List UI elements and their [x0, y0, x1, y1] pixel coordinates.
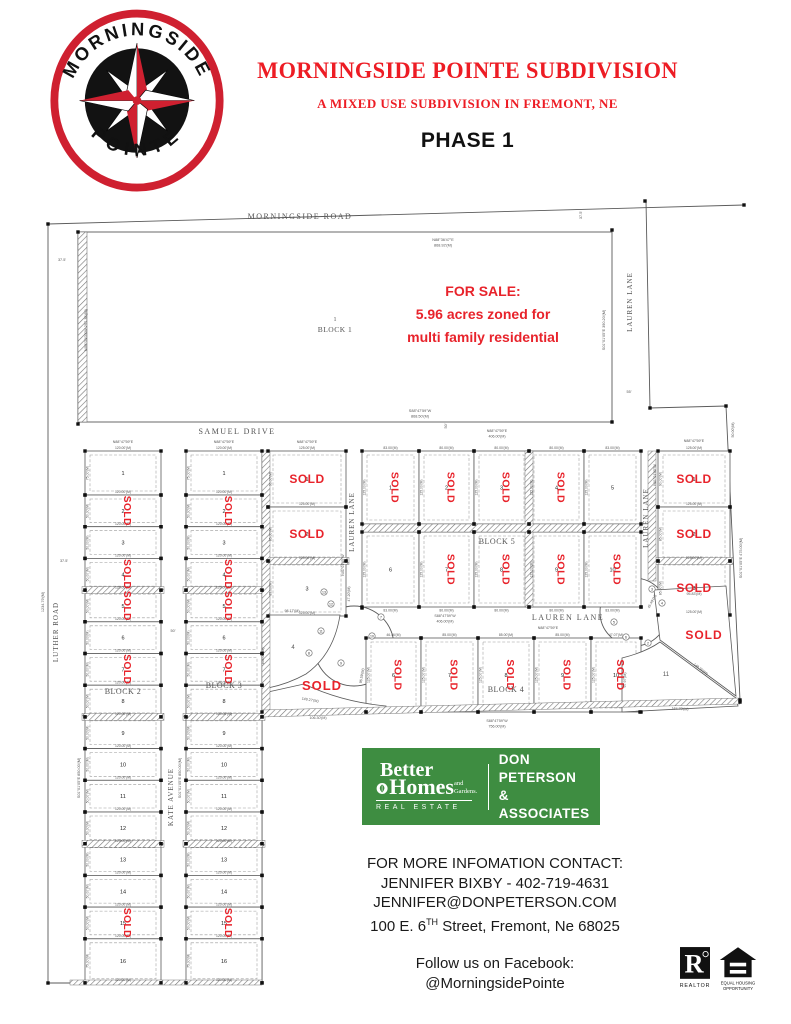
survey-point: [344, 505, 347, 508]
survey-point: [260, 874, 263, 877]
map-dimension-label: 50.00'(M): [85, 567, 89, 581]
survey-point: [184, 937, 187, 940]
sold-label: SOLD: [121, 496, 132, 526]
street-label-lauren-lane-west: LAUREN LANE: [348, 492, 356, 552]
survey-point: [260, 620, 263, 623]
bhg-homes-text: Homes: [389, 778, 454, 796]
map-dimension-label: 120.00'(M): [216, 839, 232, 843]
street-label-lauren-lane-mid: LAUREN LANE: [532, 613, 604, 622]
curve-marker-number: 7: [380, 615, 382, 619]
curve-marker-number: 12: [329, 602, 333, 606]
survey-point: [184, 874, 187, 877]
address-prefix: 100 E. 6: [370, 918, 426, 935]
sold-label: SOLD: [392, 659, 404, 690]
map-dimension-label: 75.00'(M): [186, 954, 190, 968]
map-dimension-label: 50': [444, 423, 448, 428]
sold-label: SOLD: [500, 554, 512, 585]
map-dimension-label: 106.30'(M): [309, 716, 326, 720]
sold-label: SOLD: [121, 908, 132, 938]
map-dimension-label: 165.00'(M): [261, 647, 265, 664]
map-dimension-label: 120.00'(M): [115, 839, 131, 843]
street-label-lauren-lane-east: LAUREN LANE: [642, 488, 650, 548]
curve-marker-number: 10: [370, 634, 374, 638]
survey-point: [639, 605, 642, 608]
lot-number: 9: [222, 731, 225, 737]
lot-number: 9: [121, 731, 124, 737]
easement-hatch: [70, 980, 262, 985]
map-dimension-label: N88°36'47"E: [432, 238, 454, 242]
map-dimension-label: 95.83'(M): [686, 592, 701, 596]
survey-point: [83, 905, 86, 908]
survey-point: [260, 710, 263, 713]
survey-point: [184, 905, 187, 908]
map-dimension-label: 164.70'(M): [671, 707, 688, 712]
map-dimension-label: 125.00'(M): [529, 479, 533, 495]
survey-point: [184, 684, 187, 687]
map-dimension-label: 125.00'(M): [686, 556, 702, 560]
survey-point: [184, 981, 187, 984]
survey-point: [724, 404, 727, 407]
survey-point: [76, 230, 79, 233]
map-dimension-label: 47.07'(M): [609, 633, 623, 637]
survey-point: [159, 981, 162, 984]
map-dimension-label: N88°47'59"E: [684, 439, 705, 443]
map-dimension-label: 85.00'(M): [658, 527, 662, 541]
map-dimension-label: 120.00'(M): [115, 776, 131, 780]
map-dimension-label: S01°01'05"E 475.00'(M): [739, 537, 743, 578]
map-dimension-label: 120.00'(M): [115, 554, 131, 558]
survey-point: [527, 530, 530, 533]
lot-number: 1: [222, 471, 225, 477]
street-label-samuel-drive: SAMUEL DRIVE: [198, 427, 275, 436]
map-dimension-label: 120.00'(M): [115, 649, 131, 653]
survey-point: [184, 779, 187, 782]
map-dimension-label: 125.00'(M): [591, 667, 595, 683]
survey-point: [260, 779, 263, 782]
survey-point: [76, 422, 79, 425]
map-dimension-label: 125.00'(M): [474, 479, 478, 495]
survey-point: [360, 522, 363, 525]
map-dimension-label: 120.00'(M): [216, 744, 232, 748]
map-dimension-label: 120.00'(M): [115, 902, 131, 906]
survey-point: [159, 684, 162, 687]
lot-number: 8: [222, 699, 225, 705]
map-dimension-label: 125.00'(M): [686, 610, 702, 614]
survey-point: [417, 449, 420, 452]
sold-label: SOLD: [222, 591, 233, 621]
street-label-morningside-road: MORNINGSIDE ROAD: [248, 212, 353, 221]
survey-point: [159, 525, 162, 528]
survey-point: [360, 530, 363, 533]
don-peterson-line1: DON PETERSON: [499, 751, 600, 787]
survey-point: [184, 525, 187, 528]
survey-point: [260, 905, 263, 908]
map-dimension-label: 868.50'(M): [411, 415, 430, 419]
better-homes-gardens-logo: Better Homes and Gardens. REAL ESTATE: [362, 756, 482, 817]
survey-point: [639, 449, 642, 452]
map-dimension-label: 120.00'(M): [216, 978, 232, 982]
survey-point: [260, 652, 263, 655]
contact-heading: FOR MORE INFOMATION CONTACT:: [305, 854, 685, 874]
map-dimension-label: 85.00'(M): [555, 633, 569, 637]
map-dimension-label: 120.00'(M): [216, 712, 232, 716]
map-dimension-label: 125.00'(M): [421, 667, 425, 683]
survey-point: [184, 620, 187, 623]
survey-point: [159, 779, 162, 782]
lot-number: 12: [221, 826, 227, 832]
survey-point: [648, 406, 651, 409]
survey-point: [83, 449, 86, 452]
map-dimension-label: 120.00'(M): [115, 712, 131, 716]
for-sale-line-3: multi family residential: [407, 329, 559, 345]
map-dimension-label: 85.00'(M): [658, 581, 662, 595]
equal-housing-caption-2: OPPORTUNITY: [723, 986, 753, 991]
survey-point: [639, 522, 642, 525]
survey-point: [184, 493, 187, 496]
survey-point: [656, 449, 659, 452]
bhg-and-gardens-text: and Gardens.: [454, 780, 482, 796]
map-dimension-label: 125.00'(M): [478, 667, 482, 683]
lot-number: 10: [120, 762, 126, 768]
survey-point: [184, 747, 187, 750]
map-dimension-label: 75.00'(M): [85, 954, 89, 968]
sold-label: SOLD: [561, 659, 573, 690]
map-dimension-label: 125.00'(M): [299, 446, 315, 450]
street-label-kate-avenue: KATE AVENUE: [167, 768, 175, 826]
survey-point: [184, 810, 187, 813]
contact-address: 100 E. 6TH Street, Fremont, Ne 68025: [305, 913, 685, 937]
survey-point: [472, 522, 475, 525]
lot-number: 10: [221, 762, 227, 768]
survey-point: [582, 522, 585, 525]
survey-point: [46, 222, 49, 225]
survey-point: [476, 710, 479, 713]
map-dimension-label: N88°47'59"E: [538, 626, 559, 630]
sold-label: SOLD: [445, 472, 457, 503]
lot-number: 3: [222, 541, 225, 547]
map-dimension-label: 85.00'(M): [268, 581, 272, 595]
survey-point: [260, 715, 263, 718]
survey-point: [159, 747, 162, 750]
survey-point: [83, 874, 86, 877]
survey-point: [83, 981, 86, 984]
map-dimension-label: 120.00'(M): [216, 902, 232, 906]
map-dimension-label: N88°47'59"E: [214, 440, 235, 444]
for-sale-line-1: FOR SALE:: [445, 283, 520, 299]
survey-point: [83, 652, 86, 655]
sold-label: SOLD: [676, 527, 711, 541]
survey-point: [266, 505, 269, 508]
map-dimension-label: 120.00'(M): [216, 807, 232, 811]
bhg-divider: [376, 800, 472, 801]
map-dimension-label: 50.00'(M): [186, 757, 190, 771]
survey-point: [184, 588, 187, 591]
survey-point: [742, 203, 745, 206]
survey-point: [159, 557, 162, 560]
map-dimension-label: 90.00'(M): [658, 472, 662, 486]
curve-marker-number: 4: [661, 601, 663, 605]
survey-point: [83, 715, 86, 718]
map-dimension-label: 83.00'(M): [383, 446, 397, 450]
sold-label: SOLD: [500, 472, 512, 503]
survey-point: [527, 449, 530, 452]
sold-label: SOLD: [685, 628, 722, 642]
flyer-page: MORNINGSIDE POINTE MORNINGSIDE POINTE SU…: [0, 0, 791, 1024]
survey-point: [527, 605, 530, 608]
facebook-block: Follow us on Facebook: @MorningsidePoint…: [305, 954, 685, 993]
map-dimension-label: S01°01'05"E 850.00'(M): [178, 757, 182, 798]
map-dimension-label: 125.00'(M): [584, 561, 588, 577]
map-dimension-label: 120.00'(M): [216, 554, 232, 558]
sold-label: SOLD: [121, 654, 132, 684]
survey-point: [582, 530, 585, 533]
map-dimension-label: 50.00'(M): [85, 852, 89, 866]
map-dimension-label: 80.00'(M): [439, 446, 453, 450]
map-dimension-label: 75.00'(M): [85, 466, 89, 480]
map-dimension-label: 80.00'(M): [494, 446, 508, 450]
equal-housing-caption-1: EQUAL HOUSING: [721, 981, 756, 986]
map-dimension-label: 50.00'(M): [85, 821, 89, 835]
survey-point: [360, 606, 363, 609]
map-dimension-label: 37.5': [60, 559, 68, 563]
bhg-leaf-icon: [376, 781, 388, 796]
facebook-handle: @MorningsidePointe: [305, 974, 685, 994]
survey-point: [364, 710, 367, 713]
address-suffix: Street, Fremont, Ne 68025: [438, 918, 620, 935]
map-dimension-label: 55': [627, 390, 632, 394]
map-dimension-label: 50.00'(M): [186, 535, 190, 549]
lot-number: 14: [221, 889, 227, 895]
map-dimension-label: 90.00'(M): [268, 472, 272, 486]
map-dimension-label: 1234.79'(M): [41, 591, 45, 612]
map-dimension-label: 120.00'(M): [216, 446, 232, 450]
sold-label: SOLD: [121, 559, 132, 589]
survey-point: [472, 530, 475, 533]
curve-marker-number: 8: [308, 651, 310, 655]
map-dimension-label: 125.00'(M): [686, 502, 702, 506]
sold-label: SOLD: [555, 554, 567, 585]
sold-label: SOLD: [289, 472, 324, 486]
sold-label: SOLD: [222, 496, 233, 526]
survey-point: [83, 842, 86, 845]
lot-number: 12: [120, 826, 126, 832]
survey-point: [643, 199, 646, 202]
street-label-luther-road: LUTHER ROAD: [52, 602, 60, 662]
map-dimension-label: 125.00'(M): [474, 561, 478, 577]
block-5-label: BLOCK 5: [479, 537, 516, 546]
survey-point: [46, 981, 49, 984]
map-dimension-label: 125.00'(M): [299, 556, 315, 560]
map-dimension-label: 50.00'(M): [186, 884, 190, 898]
map-dimension-label: 120.00'(M): [115, 807, 131, 811]
map-dimension-label: 50.00'(M): [85, 504, 89, 518]
survey-point: [260, 810, 263, 813]
curve-marker-number: 3: [651, 587, 653, 591]
survey-point: [83, 557, 86, 560]
sold-label: SOLD: [555, 472, 567, 503]
sold-label: SOLD: [302, 678, 342, 693]
map-dimension-label: 98.17'(M): [284, 609, 299, 613]
lot-number: 1: [121, 471, 124, 477]
address-superscript: TH: [426, 917, 438, 927]
map-dimension-label: S88°47'59"W: [409, 409, 432, 413]
map-dimension-label: 50.00'(M): [186, 694, 190, 708]
survey-point: [728, 505, 731, 508]
facebook-heading: Follow us on Facebook:: [305, 954, 685, 974]
survey-point: [638, 710, 641, 713]
map-dimension-label: 80.00'(M): [549, 609, 563, 613]
survey-point: [159, 874, 162, 877]
map-dimension-label: 50.00'(M): [186, 789, 190, 803]
map-dimension-label: 50.00'(M): [85, 726, 89, 740]
survey-point: [266, 614, 269, 617]
map-dimension-label: 50.00'(M): [186, 599, 190, 613]
map-dimension-label: 50.00'(M): [85, 884, 89, 898]
lot-number: 6: [389, 568, 392, 574]
lot-number: 6: [121, 636, 124, 642]
lot-number: 11: [663, 672, 670, 678]
map-dimension-label: 406.00'(M): [488, 435, 505, 439]
survey-point: [260, 493, 263, 496]
survey-point: [159, 588, 162, 591]
survey-point: [184, 842, 187, 845]
map-dimension-label: 125.00'(M): [366, 667, 370, 683]
sold-label: SOLD: [222, 559, 233, 589]
curve-marker-number: 6: [625, 635, 627, 639]
survey-point: [83, 779, 86, 782]
survey-point: [260, 588, 263, 591]
map-dimension-label: N01°01'05"W: [341, 554, 345, 576]
map-dimension-label: 125.00'(M): [529, 561, 533, 577]
sold-label: SOLD: [445, 554, 457, 585]
map-dimension-label: N88°47'59"E: [297, 440, 318, 444]
block-1-number: 1: [334, 317, 337, 323]
sold-label: SOLD: [448, 659, 460, 690]
map-dimension-label: 37.5': [579, 211, 583, 219]
curve-marker-number: 2: [647, 641, 649, 645]
survey-point: [532, 710, 535, 713]
map-dimension-label: 50.00'(M): [731, 422, 735, 437]
lot-number: 3: [121, 541, 124, 547]
survey-point: [639, 636, 642, 639]
survey-point: [83, 747, 86, 750]
lot-number: 3: [305, 587, 308, 593]
map-dimension-label: 50.00'(M): [186, 821, 190, 835]
contact-name-phone: JENNIFER BIXBY - 402-719-4631: [305, 874, 685, 894]
map-dimension-label: 75.00'(M): [186, 466, 190, 480]
map-dimension-label: 85.00'(M): [499, 633, 513, 637]
survey-point: [260, 449, 263, 452]
map-dimension-label: N01°01'05"W: [653, 464, 657, 486]
map-dimension-label: 80.00'(M): [549, 446, 563, 450]
survey-point: [266, 449, 269, 452]
survey-point: [417, 522, 420, 525]
survey-point: [159, 842, 162, 845]
survey-point: [260, 747, 263, 750]
map-dimension-label: 80.00'(M): [494, 609, 508, 613]
map-dimension-label: 96.59'(M): [359, 668, 366, 684]
survey-point: [419, 636, 422, 639]
survey-point: [360, 449, 363, 452]
map-dimension-label: 50.00'(M): [186, 916, 190, 930]
survey-point: [260, 937, 263, 940]
survey-point: [589, 636, 592, 639]
survey-point: [610, 420, 613, 423]
survey-point: [728, 449, 731, 452]
survey-point: [159, 493, 162, 496]
map-dimension-label: S01°01'05"E 390.20'(M): [602, 309, 606, 350]
block-3-label: BLOCK 3: [206, 681, 243, 690]
map-dimension-label: 50': [171, 629, 176, 633]
curve-marker-number: 9: [340, 661, 342, 665]
map-dimension-label: 50.00'(M): [85, 535, 89, 549]
boundary-north: [48, 205, 744, 224]
map-dimension-label: 120.00'(M): [115, 446, 131, 450]
survey-point: [656, 559, 659, 562]
survey-point: [728, 613, 731, 616]
map-dimension-label: 125.00'(M): [419, 479, 423, 495]
legal-icons: R REALTOR EQUAL HOUSING OPPORTUNITY: [680, 946, 758, 994]
block-2-label: BLOCK 2: [105, 687, 142, 696]
map-dimension-label: 50.00'(M): [186, 631, 190, 645]
survey-point: [728, 559, 731, 562]
map-dimension-label: 406.00'(M): [436, 620, 453, 624]
lot-number: 16: [120, 959, 126, 965]
sold-label: SOLD: [389, 472, 401, 503]
survey-point: [419, 710, 422, 713]
map-dimension-label: S88°47'59"W: [434, 614, 456, 618]
survey-point: [472, 605, 475, 608]
sold-label: SOLD: [611, 554, 623, 585]
map-dimension-label: S01°01'05"E 850.00'(M): [77, 757, 81, 798]
map-dimension-label: 50.00'(M): [85, 757, 89, 771]
survey-point: [610, 228, 613, 231]
map-dimension-label: 50.00'(M): [186, 852, 190, 866]
sold-label: SOLD: [121, 591, 132, 621]
map-dimension-label: 97.97'(M): [623, 672, 627, 687]
sold-label: SOLD: [289, 527, 324, 541]
survey-point: [527, 522, 530, 525]
map-dimension-label: 80.00'(M): [439, 609, 453, 613]
map-dimension-label: 756.00'(M): [488, 725, 505, 729]
survey-point: [582, 605, 585, 608]
map-dimension-label: 120.00'(M): [216, 776, 232, 780]
survey-point: [184, 715, 187, 718]
map-dimension-label: 50.00'(M): [85, 631, 89, 645]
map-dimension-label: 83.00'(M): [605, 609, 619, 613]
map-dimension-label: 50.00'(M): [85, 599, 89, 613]
survey-point: [476, 636, 479, 639]
survey-point: [656, 505, 659, 508]
map-dimension-label: 120.00'(M): [216, 490, 232, 494]
brand-vertical-divider: [488, 764, 489, 810]
sold-label: SOLD: [222, 654, 233, 684]
don-peterson-text: DON PETERSON & ASSOCIATES: [499, 751, 600, 823]
survey-point: [260, 525, 263, 528]
survey-point: [656, 613, 659, 616]
survey-point: [83, 525, 86, 528]
map-dimension-label: N00°03'03"W 297.36'(M): [84, 308, 88, 350]
map-dimension-label: 50.00'(M): [186, 662, 190, 676]
map-dimension-label: 83.00'(M): [605, 446, 619, 450]
lot-number: 8: [121, 699, 124, 705]
survey-point: [83, 684, 86, 687]
street-label-lauren-lane-north: LAUREN LANE: [626, 272, 634, 332]
survey-point: [159, 937, 162, 940]
bhg-real-estate-text: REAL ESTATE: [376, 804, 482, 811]
survey-point: [639, 530, 642, 533]
survey-point: [159, 905, 162, 908]
